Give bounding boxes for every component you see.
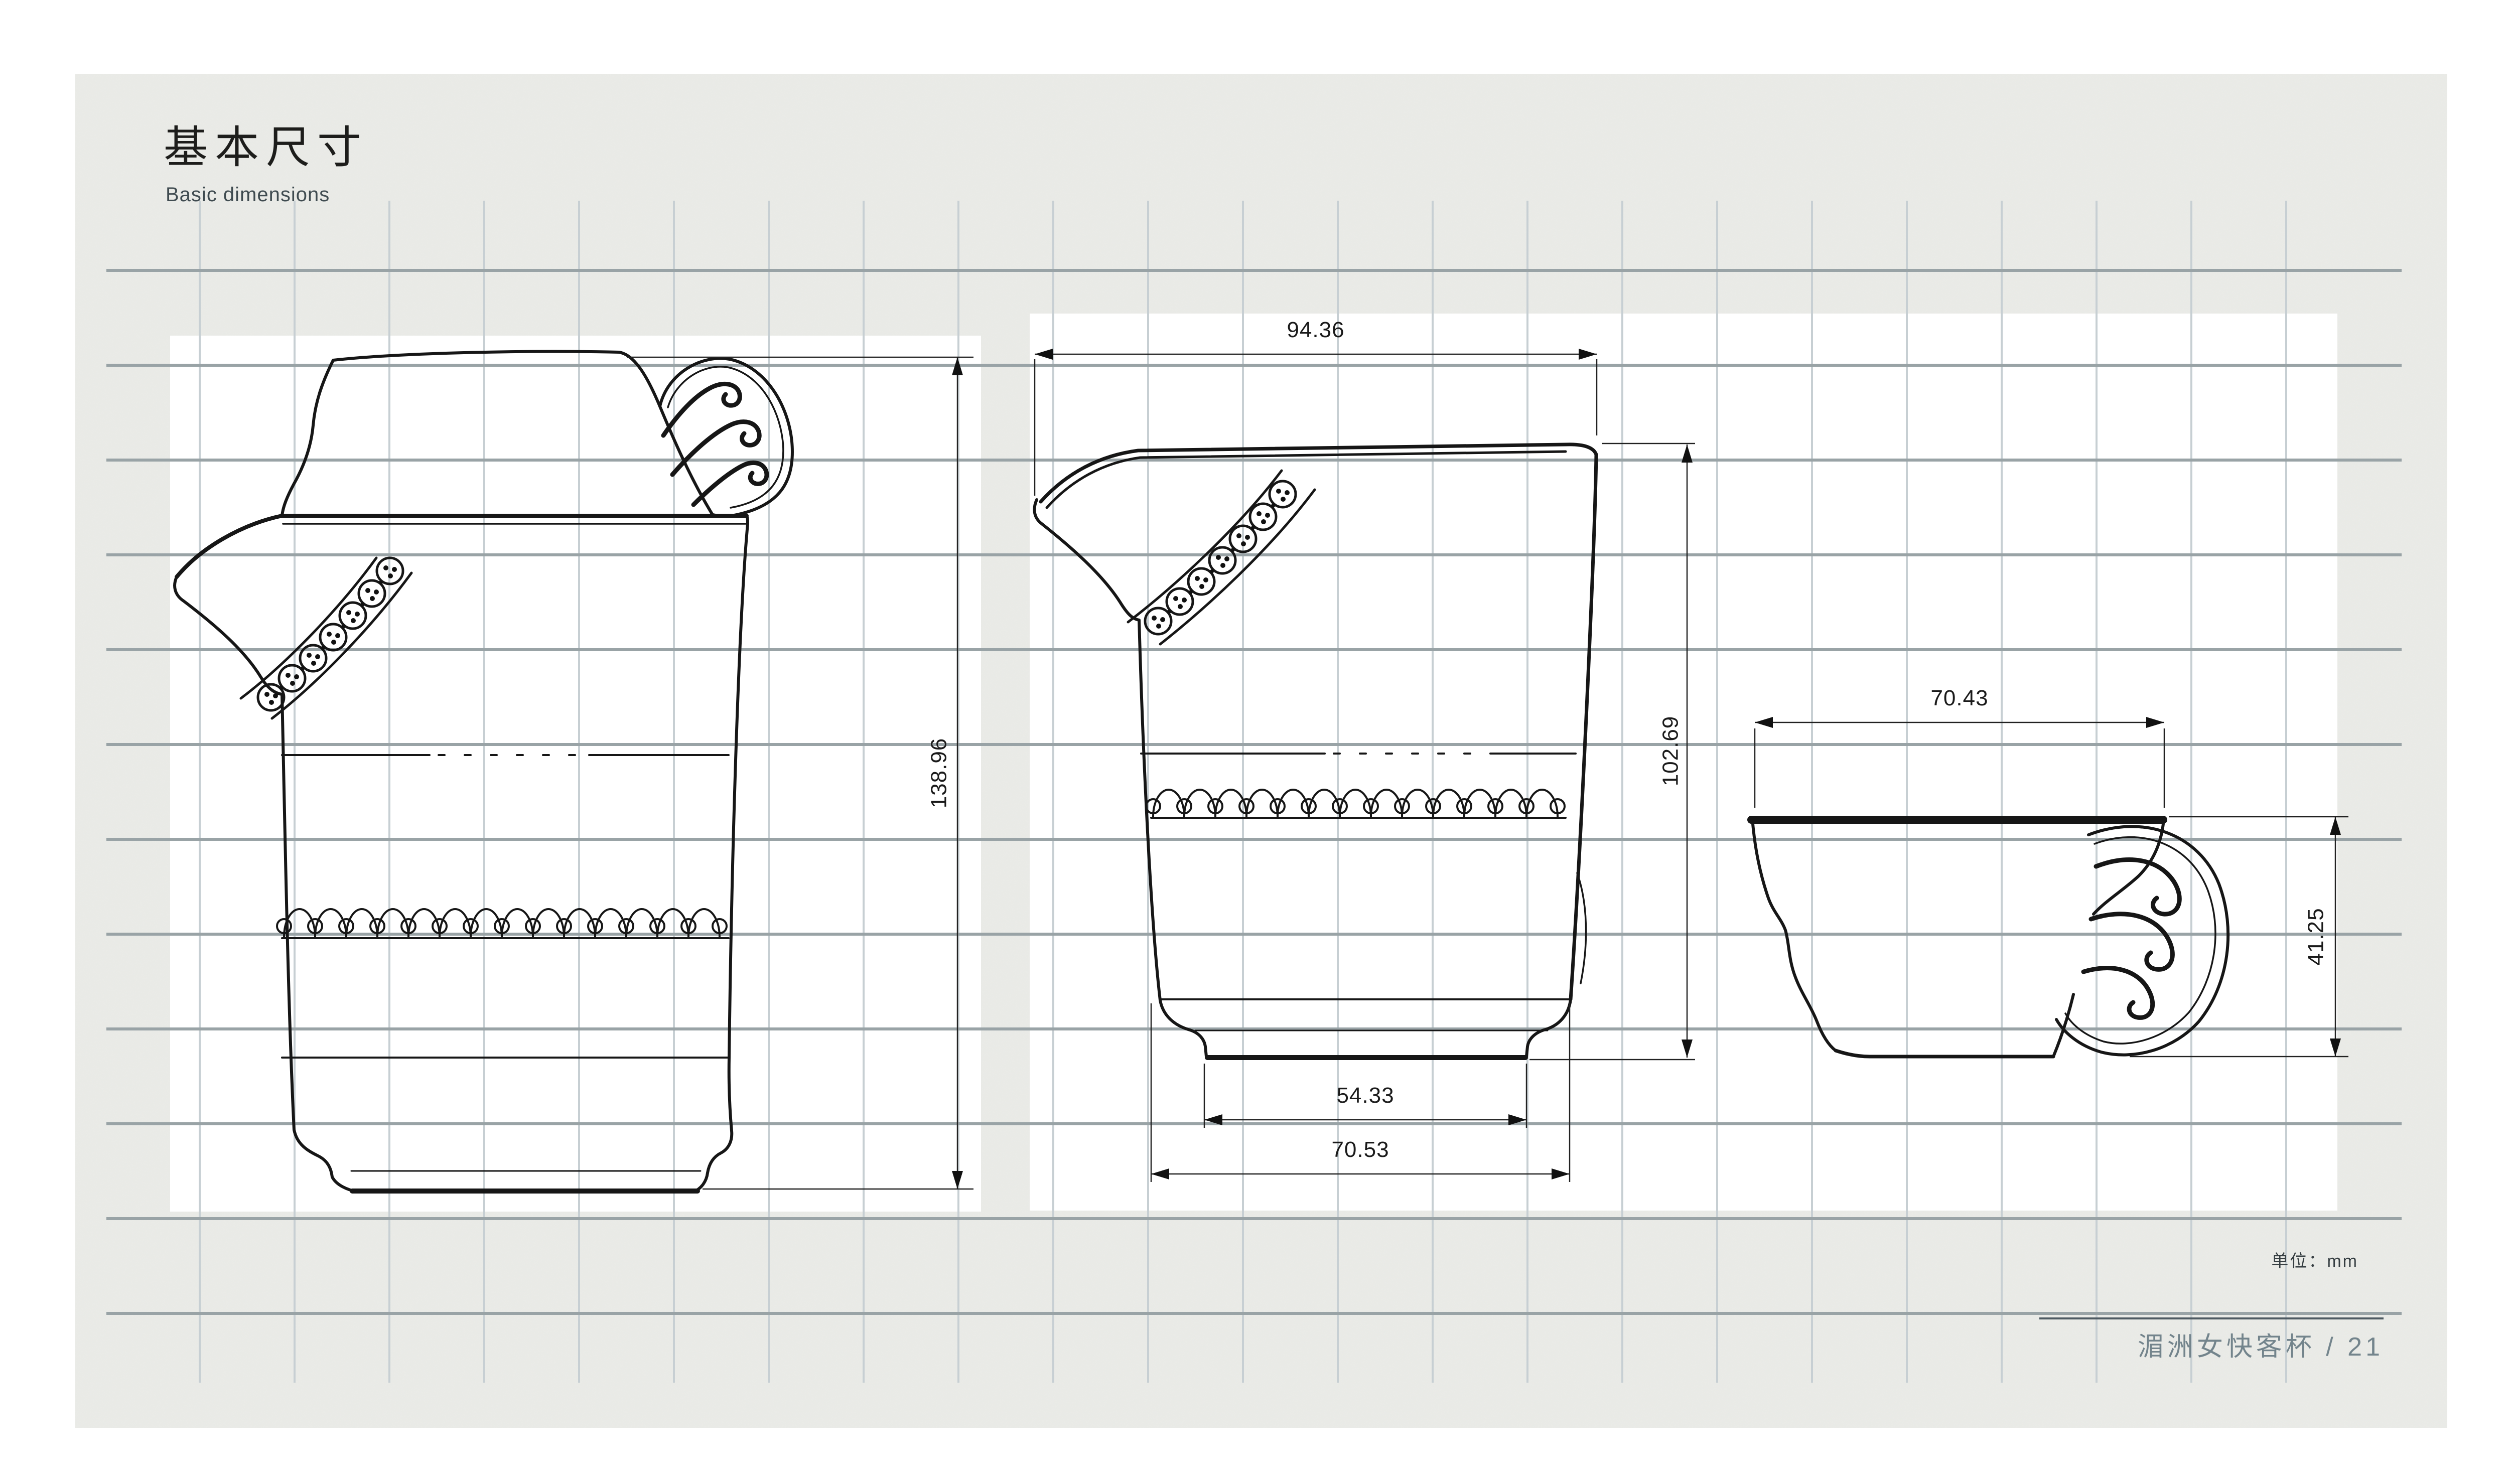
rosette-dots [264,565,397,705]
page: 基本尺寸 Basic dimensions [0,0,2509,1484]
dim-cup-height: 41.25 [2130,817,2348,1057]
pot-rim [177,516,747,577]
footer-caption: 湄洲女快客杯 / 21 [2082,1325,2384,1363]
body-right-outline [693,516,748,1192]
dim-cup-height-label: 41.25 [2304,908,2328,965]
dim-cup-top-width: 70.43 [1755,686,2164,808]
dim-assembled-height: 138.96 [627,357,973,1189]
handle-scroll-2 [2091,914,2172,970]
handle-scroll-1 [2096,860,2179,914]
lid-handle-inner [668,367,783,508]
dim-pot-top-width-label: 94.36 [1287,318,1344,342]
front-view-pot-drawing: 94.36 102.69 54.33 70.53 [1014,310,1741,1209]
cup-left-outline [1753,824,1836,1051]
dim-pot-height: 102.69 [1529,443,1695,1060]
handle-scroll-3 [2083,968,2153,1018]
dim-pot-foot-width-label: 54.33 [1336,1083,1394,1108]
lid-right-outline [333,352,713,515]
rosette-band-border-1 [1128,471,1282,622]
page-title: 基本尺寸 [164,123,368,172]
rosette-band-border-2 [1160,490,1315,644]
cup-handle-inner [2065,837,2215,1044]
unit-note: 单位：mm [2178,1247,2358,1272]
scallop-circles [1146,799,1565,813]
dim-pot-foot-width: 54.33 [1204,1064,1526,1128]
page-subtitle: Basic dimensions [166,184,330,206]
body-left-outline [175,577,358,1192]
cup-bottom [1836,1051,2053,1057]
lid-left-outline [282,360,333,516]
dim-pot-base-width-label: 70.53 [1331,1137,1389,1162]
dim-assembled-height-label: 138.96 [927,738,951,809]
cup-right-lower [2053,994,2073,1057]
dim-pot-height-label: 102.69 [1658,716,1683,787]
footer-rule [2039,1317,2384,1319]
dim-cup-top-width-label: 70.43 [1930,686,1988,710]
body-left-outline [1139,620,1206,1057]
side-view-cup-drawing: 70.43 41.25 [1716,662,2399,1124]
body-right-outline [1571,455,1596,999]
spout-underside [1034,500,1139,620]
dim-pot-top-width: 94.36 [1035,318,1597,496]
rosette-dots [1152,489,1290,629]
front-view-assembled-drawing: 138.96 [151,325,1004,1209]
foot-right [1526,999,1571,1057]
